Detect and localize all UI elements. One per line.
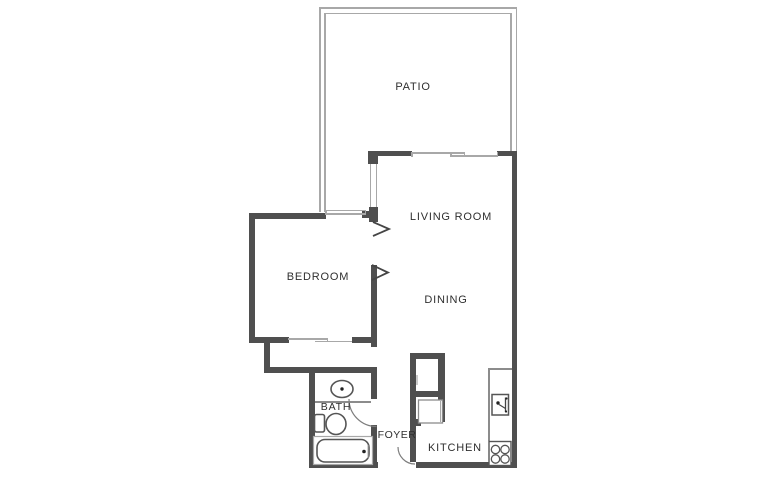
bath-sink (331, 381, 353, 398)
burner (501, 445, 509, 453)
room-label-dining: DINING (396, 295, 496, 306)
toilet-tank (315, 415, 325, 433)
room-label-kitchen: KITCHEN (415, 443, 495, 454)
room-label-patio: PATIO (363, 82, 463, 93)
appliance-box (419, 400, 443, 423)
kitchen-sink (492, 395, 509, 416)
bathtub-drain (362, 450, 366, 454)
room-label-foyer: FOYER (371, 430, 423, 441)
burner (501, 455, 509, 463)
door-chevron-living (373, 222, 389, 236)
room-label-bedroom: BEDROOM (268, 272, 368, 283)
kitchen-sink-drain (496, 401, 499, 404)
kitchen-faucet-handle (505, 397, 507, 399)
burner (491, 455, 499, 463)
kitchen-faucet-handle (505, 410, 507, 412)
room-label-bath: BATH (311, 402, 361, 413)
bathtub-inner (317, 440, 369, 463)
door-chevron-bedroom (372, 265, 388, 280)
toilet-bowl (326, 414, 346, 435)
bath-sink-drain (340, 387, 343, 390)
toilet (315, 414, 347, 435)
room-label-living-room: LIVING ROOM (391, 212, 511, 223)
floor-plan: PATIO LIVING ROOM BEDROOM DINING BATH FO… (0, 0, 768, 480)
fixtures-layer (0, 0, 768, 480)
entry-door-arc (398, 447, 415, 464)
bathtub (314, 437, 373, 465)
